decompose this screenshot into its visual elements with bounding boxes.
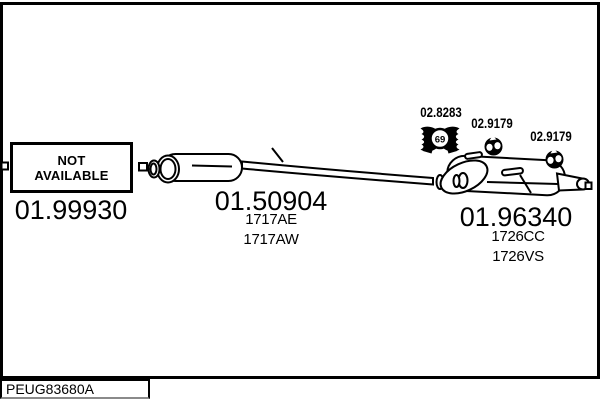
rear-silencer-oe-ref-2: 1726VS [458, 249, 578, 265]
front-to-centre-joint-square [139, 163, 147, 171]
rubber-hanger-icon-rear [546, 149, 564, 169]
rear-silencer-hanger-pin-mid [502, 168, 524, 176]
rear-silencer-part-number: 01.96340 [446, 203, 586, 231]
clamp-size-text: 69 [435, 135, 446, 146]
clamp-icon: 69 [421, 127, 460, 154]
intermediate-pipe-shape [242, 162, 433, 185]
drawing-code-box: PEUG83680A [0, 379, 150, 399]
rear-silencer-hanger-pin-front [465, 152, 483, 159]
hanger-front-part-number: 02.9179 [461, 117, 524, 131]
rear-silencer-oe-ref-1: 1726CC [458, 229, 578, 245]
rear-silencer-inlet-stub-end [454, 175, 460, 187]
centre-silencer-seam [192, 166, 232, 167]
tail-joint-square [586, 183, 592, 190]
pipe-bracket-tick [272, 148, 283, 162]
front-joint-square [2, 163, 9, 170]
centre-silencer-oe-ref-1: 1717AE [211, 212, 331, 228]
rubber-hanger-icon-front [485, 136, 503, 156]
centre-silencer-oe-ref-2: 1717AW [211, 232, 331, 248]
hanger-rear-part-number: 02.9179 [520, 130, 583, 144]
not-available-line1: NOT [57, 153, 85, 168]
exhaust-parts-diagram: 69 NOT AVAILABLE 01.99930 01.50904 01.96… [0, 0, 600, 400]
not-available-box: NOT AVAILABLE [10, 142, 133, 193]
not-available-line2: AVAILABLE [34, 168, 108, 183]
front-pipe-part-number: 01.99930 [6, 196, 136, 224]
drawing-code-text: PEUG83680A [6, 381, 94, 397]
